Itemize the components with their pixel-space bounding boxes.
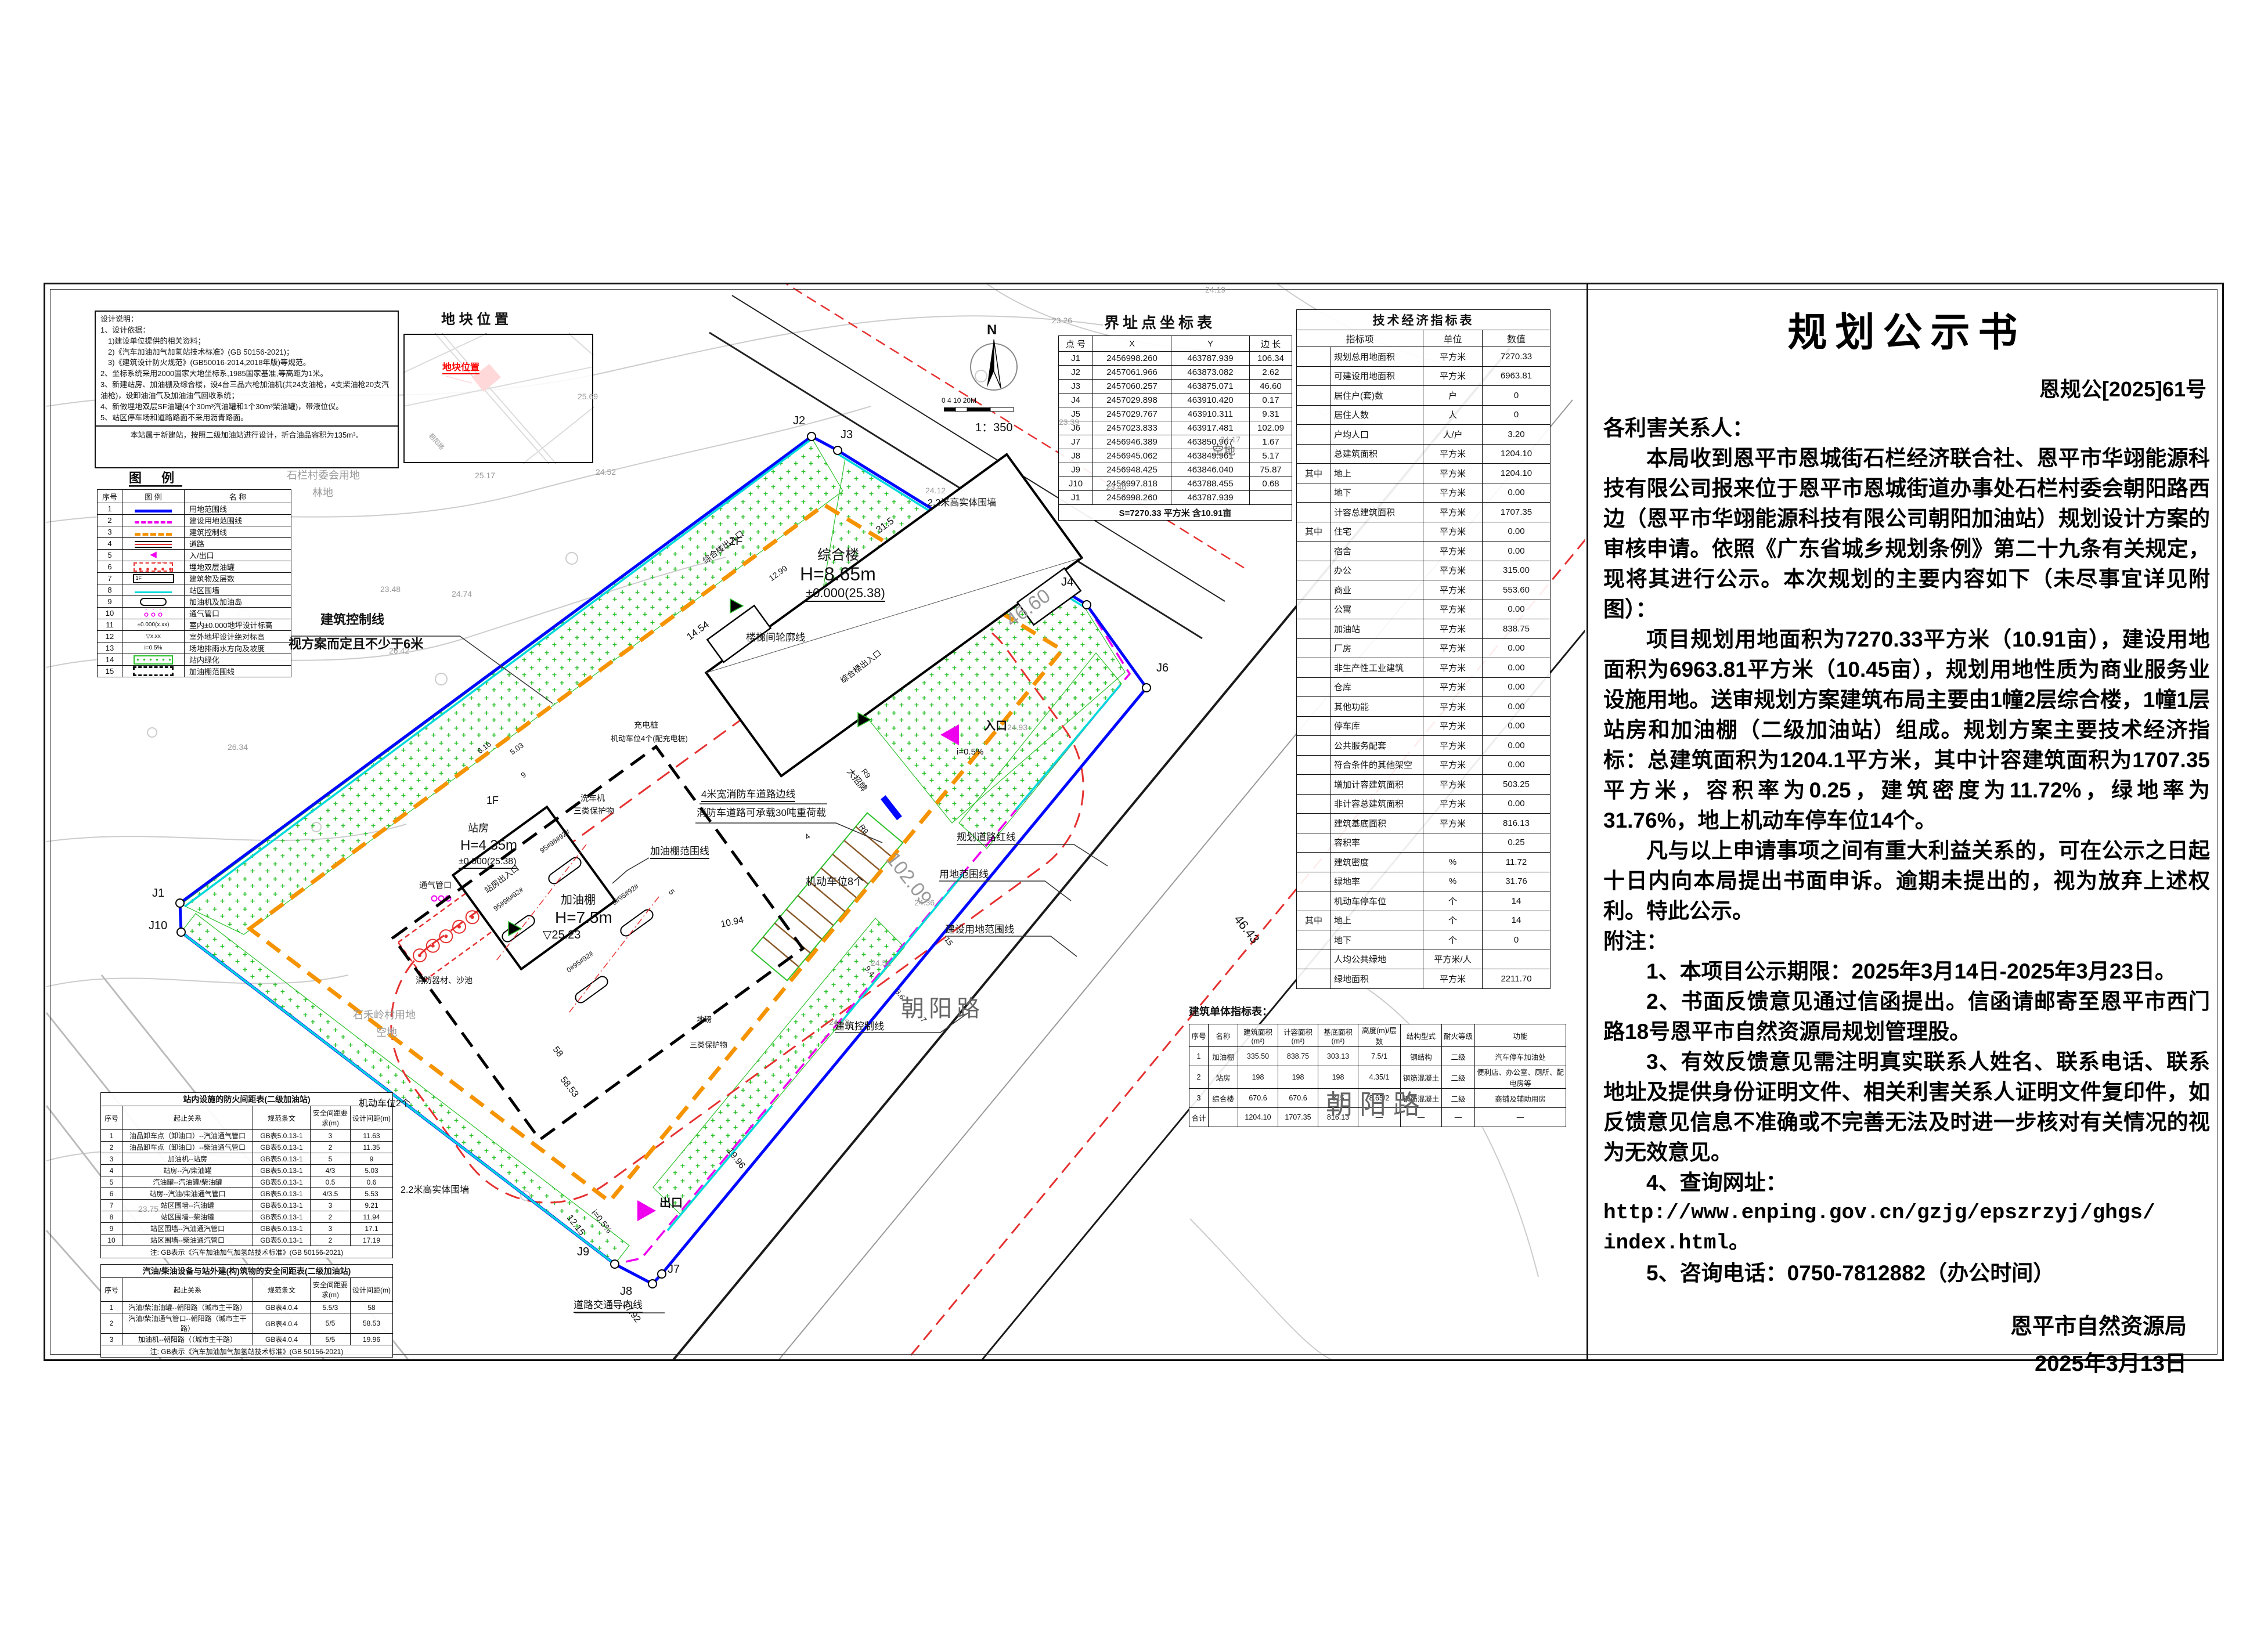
point-x: 2456998.260 [1093, 491, 1171, 505]
fs1-col-required: 安全间距要求(m) [311, 1106, 351, 1130]
point-label-j3: J3 [841, 428, 853, 441]
fs1-designed: 17.1 [351, 1223, 393, 1234]
legend-symbol-glyph [134, 562, 173, 572]
tech-indicator: 公寓 [1331, 600, 1423, 619]
legend-symbol: i=0.5% [122, 642, 185, 654]
tech-col-unit: 单位 [1423, 330, 1483, 347]
spot-elevation: 23.48 [380, 585, 401, 594]
tech-unit: 平方米 [1423, 619, 1483, 639]
tech-indicator: 加油站 [1331, 619, 1423, 639]
control-line-note-title: 建筑控制线 [320, 613, 384, 627]
notice-paragraph: http://www.enping.gov.cn/gzjg/epszrzyj/g… [1603, 1198, 2210, 1228]
b-area: 670.6 [1238, 1089, 1278, 1108]
design-note-line: 1、设计依据： [100, 325, 393, 336]
segment-length: 0.68 [1250, 477, 1292, 491]
tech-value: 0.00 [1483, 736, 1551, 756]
fs1-required: 0.5 [311, 1176, 351, 1188]
spot-elevation: 24.12 [925, 486, 946, 495]
legend-num: 4 [98, 538, 122, 550]
point-y: 463875.071 [1171, 380, 1250, 394]
location-map-marker-label: 地块位置 [442, 363, 479, 374]
tech-row: 建筑密度 % 11.72 [1297, 853, 1551, 872]
tech-group [1297, 853, 1331, 872]
point-x: 2457023.833 [1093, 421, 1171, 435]
fs1-code: GB表5.0.13-1 [253, 1211, 311, 1223]
b-far-area: 198 [1278, 1066, 1318, 1089]
tech-value: 3.20 [1483, 425, 1551, 445]
fs1-designed: 9 [351, 1153, 393, 1165]
b-col-footprint: 基底面积(m²) [1318, 1024, 1358, 1047]
legend-symbol-glyph [134, 655, 173, 665]
fs1-required: 3 [311, 1130, 351, 1142]
tech-indicator: 户均人口 [1331, 425, 1423, 445]
design-note-line: 4、新做埋地双层SF油罐(4个30m³汽油罐和1个30m³柴油罐)，带液位仪。 [100, 402, 393, 413]
fs1-required: 3 [311, 1200, 351, 1211]
b-num: 1 [1189, 1047, 1209, 1066]
tech-unit: 平方米 [1423, 542, 1483, 561]
tech-unit: 平方米 [1423, 716, 1483, 736]
tech-unit: 平方米 [1423, 464, 1483, 483]
tech-row: 其中 住宅 平方米 0.00 [1297, 522, 1551, 542]
exit-label: 出口 [659, 1197, 683, 1210]
fs2-num: 2 [101, 1313, 122, 1334]
point-label-j2: J2 [793, 414, 805, 427]
tech-unit: 平方米 [1423, 658, 1483, 678]
tech-row: 总建筑面积 平方米 1204.10 [1297, 444, 1551, 464]
tech-group [1297, 950, 1331, 969]
legend-table: 序号 图 例 名 称 1 用地范围线 2 建设用地范围线 [97, 489, 291, 677]
segment-length: 5.17 [1250, 449, 1292, 463]
tech-row: 建筑基底面积 平方米 816.13 [1297, 814, 1551, 833]
wall-label-2: 2.2米高实体围墙 [401, 1185, 469, 1196]
main-building-level: ±0.000(25.38) [806, 586, 885, 602]
tech-indicator: 其他功能 [1331, 697, 1423, 717]
fs1-relation: 站房--汽油/柴油通气管口 [122, 1188, 253, 1200]
tech-unit: 平方米 [1423, 736, 1483, 756]
b-col-structure: 结构型式 [1401, 1024, 1442, 1047]
legend-name: 通气管口 [185, 608, 291, 619]
fs2-row: 1 汽油/柴油油罐--朝阳路（城市主干路） GB表4.0.4 5.5/3 58 [101, 1302, 393, 1313]
fs2-col-code: 规范条文 [253, 1278, 311, 1302]
tech-value: 11.72 [1483, 853, 1551, 872]
fs1-required: 3 [311, 1223, 351, 1234]
legend-num: 6 [98, 561, 122, 573]
point-id: J1 [1059, 352, 1093, 366]
legend-row: 6 埋地双层油罐 [98, 561, 291, 573]
b-col-num: 序号 [1189, 1024, 1209, 1047]
design-note-line: 设计说明： [100, 314, 393, 325]
b-num: 2 [1189, 1066, 1209, 1089]
notice-panel: 规划公示书 恩规公[2025]61号 各利害关系人： 本局收到恩平市恩城街石栏经… [1588, 283, 2224, 1361]
shiheling-village-label: 石禾岭村用地 [353, 1010, 416, 1021]
charger-label: 充电桩 [634, 721, 658, 730]
legend-row: 4 道路 [98, 538, 291, 550]
design-note-line: 3、新建站房、加油棚及综合楼，设4台三品六枪加油机(共24支油枪，4支柴油枪20… [100, 380, 393, 402]
fs1-designed: 9.21 [351, 1200, 393, 1211]
b-area: 1204.10 [1238, 1108, 1278, 1127]
legend-symbol: 1F [122, 573, 185, 584]
fs1-required: 5 [311, 1153, 351, 1165]
b-num: 3 [1189, 1089, 1209, 1108]
design-note-footnote: 本站属于新建站，按照二级加油站进行设计，折合油品容积为135m³。 [96, 425, 398, 445]
legend-symbol [122, 561, 185, 573]
fs1-designed: 11.63 [351, 1130, 393, 1142]
legend-row: 14 站内绿化 [98, 654, 291, 666]
point-y: 463910.311 [1171, 407, 1250, 421]
tech-row: 其他功能 平方米 0.00 [1297, 697, 1551, 717]
point-x: 2456998.260 [1093, 352, 1171, 366]
tech-indicator: 规划总用地面积 [1331, 347, 1423, 367]
fs1-designed: 11.35 [351, 1142, 393, 1153]
legend-num: 1 [98, 503, 122, 515]
station-house-name: 站房 [468, 823, 489, 835]
tech-row: 居住户(套)数 户 0 [1297, 386, 1551, 406]
fs1-row: 2 油品卸车点（卸油口）--柴油通气管口 GB表5.0.13-1 2 11.35 [101, 1142, 393, 1153]
tech-indicator: 绿地率 [1331, 872, 1423, 891]
fs1-num: 2 [101, 1142, 122, 1153]
tech-indicator: 地上 [1331, 911, 1423, 930]
legend-symbol-glyph [135, 541, 172, 548]
fs1-relation: 油品卸车点（卸油口）--汽油通气管口 [122, 1130, 253, 1142]
tech-value: 1204.10 [1483, 444, 1551, 464]
spot-elevation: 26.34 [228, 743, 248, 752]
tech-indicator: 住宅 [1331, 522, 1423, 542]
fs2-code: GB表4.0.4 [253, 1313, 311, 1334]
point-id: J8 [1059, 449, 1093, 463]
tech-value: 14 [1483, 911, 1551, 930]
legend-row: 1 用地范围线 [98, 503, 291, 515]
tech-indicator: 办公 [1331, 561, 1423, 580]
legend-row: 12 ▽x.xx 室外地坪设计绝对标高 [98, 631, 291, 642]
b-height: 7.5/1 [1358, 1047, 1401, 1066]
b-col-fire: 耐火等级 [1442, 1024, 1475, 1047]
fs2-relation: 汽油/柴油油罐--朝阳路（城市主干路） [122, 1302, 253, 1313]
tech-row: 其中 地上 平方米 1204.10 [1297, 464, 1551, 483]
b-name: 综合楼 [1209, 1089, 1238, 1108]
legend-name: 室内±0.000地坪设计标高 [185, 619, 291, 631]
legend-row: 7 1F 建筑物及层数 [98, 573, 291, 584]
point-x: 2457061.966 [1093, 366, 1171, 380]
scale-bar-marks: 0 4 10 20M [942, 397, 976, 405]
tech-indicator: 绿地面积 [1331, 969, 1423, 989]
legend-row: 5 ◀ 入/出口 [98, 550, 291, 561]
boundary-row: J1 2456998.260 463787.939 [1059, 491, 1292, 505]
tech-group [1297, 638, 1331, 658]
legend-name: 室外地坪设计绝对标高 [185, 631, 291, 642]
b-far-area: 1707.35 [1278, 1108, 1318, 1127]
fs1-code: GB表5.0.13-1 [253, 1142, 311, 1153]
design-notes: 设计说明： 1、设计依据： 1)建设单位提供的相关资料； 2)《汽车加油加气加氢… [95, 311, 399, 468]
segment-length: 1.67 [1250, 435, 1292, 449]
tech-col-value: 数值 [1483, 330, 1551, 347]
fs1-col-num: 序号 [101, 1106, 122, 1130]
point-label-j1: J1 [152, 887, 164, 900]
tech-indicator: 厂房 [1331, 638, 1423, 658]
point-y: 463788.455 [1171, 477, 1250, 491]
b-far-area: 670.6 [1278, 1089, 1318, 1108]
tech-row: 规划总用地面积 平方米 7270.33 [1297, 347, 1551, 367]
fs1-num: 10 [101, 1234, 122, 1246]
point-y: 463787.939 [1171, 352, 1250, 366]
building-row: 1 加油棚 335.50 838.75 303.13 7.5/1 钢结构 二级 … [1189, 1047, 1566, 1066]
tech-unit: 平方米 [1423, 347, 1483, 367]
tech-indicator: 居住户(套)数 [1331, 386, 1423, 406]
tech-unit: 平方米 [1423, 794, 1483, 814]
fs1-required: 4/3 [311, 1165, 351, 1176]
notice-paragraph: 3、有效反馈意见需注明真实联系人姓名、联系电话、联系地址及提供身份证明文件、相关… [1603, 1047, 2210, 1168]
tech-indicator: 机动车停车位 [1331, 891, 1423, 911]
fs1-num: 1 [101, 1130, 122, 1142]
tech-unit: 平方米 [1423, 697, 1483, 717]
tech-indicator: 增加计容建筑面积 [1331, 775, 1423, 795]
design-note-line: 2)《汽车加油加气加氢站技术标准》(GB 50156-2021)； [100, 347, 393, 358]
legend-col-name: 名 称 [185, 490, 291, 503]
wall-label-1: 2.2米高实体围墙 [928, 498, 996, 508]
legend-col-symbol: 图 例 [122, 490, 185, 503]
notice-paragraph: 4、查询网址： [1603, 1168, 2210, 1198]
legend-num: 2 [98, 515, 122, 526]
notice-paragraph: 附注： [1603, 926, 2210, 956]
tech-indicator: 总建筑面积 [1331, 444, 1423, 464]
tech-group [1297, 736, 1331, 756]
notice-title: 规划公示书 [1603, 300, 2210, 358]
fs1-num: 9 [101, 1223, 122, 1234]
tech-unit: 平方米 [1423, 775, 1483, 795]
legend-num: 3 [98, 526, 122, 538]
tech-group [1297, 483, 1331, 503]
legend-symbol-glyph: ◀ [135, 551, 172, 560]
spot-elevation: 23.40 [1106, 483, 1126, 492]
col-length: 边 长 [1250, 336, 1292, 352]
b-function: 商铺及辅助用房 [1475, 1089, 1566, 1108]
tech-indicator: 公共服务配套 [1331, 736, 1423, 756]
tech-row: 厂房 平方米 0.00 [1297, 638, 1551, 658]
tech-value: 0.00 [1483, 677, 1551, 697]
fs1-row: 10 站区围墙--柴油通汽管口 GB表5.0.13-1 2 17.19 [101, 1234, 393, 1246]
tech-value: 0.00 [1483, 794, 1551, 814]
fs2-designed: 58 [351, 1302, 393, 1313]
vacant-land-label-1: 空地 [1212, 445, 1235, 457]
point-x: 2457060.257 [1093, 380, 1171, 394]
slope-label-1: i=0.5% [957, 748, 983, 757]
boundary-row: J5 2457029.767 463910.311 9.31 [1059, 407, 1292, 421]
tech-row: 可建设用地面积 平方米 6963.81 [1297, 366, 1551, 386]
tech-group [1297, 366, 1331, 386]
tech-indicator: 地上 [1331, 464, 1423, 483]
tech-indicator: 建筑基底面积 [1331, 814, 1423, 833]
legend-num: 12 [98, 631, 122, 642]
stairwell-label: 楼梯间轮廓线 [746, 633, 805, 644]
tech-group [1297, 425, 1331, 445]
tech-group [1297, 833, 1331, 853]
segment-length: 9.31 [1250, 407, 1292, 421]
fs1-relation: 站区围墙--柴油通汽管口 [122, 1234, 253, 1246]
station-house-floors: 1F [486, 795, 499, 807]
canopy-level: ▽25.23 [543, 929, 580, 941]
legend-row: 10 通气管口 [98, 608, 291, 619]
issuing-authority: 恩平市自然资源局 [1603, 1308, 2187, 1345]
location-map [403, 334, 593, 463]
legend-row: 13 i=0.5% 场地排雨水方向及坡度 [98, 642, 291, 654]
boundary-row: J7 2456946.389 463850.967 1.67 [1059, 435, 1292, 449]
legend-col-num: 序号 [98, 490, 122, 503]
fs2-row: 3 加油机--朝阳路（（城市主干路） GB表4.0.4 5/5 19.96 [101, 1334, 393, 1345]
b-col-far-area: 计容面积(m²) [1278, 1024, 1318, 1047]
legend-symbol-glyph [135, 521, 172, 524]
tech-group [1297, 386, 1331, 406]
fs2-col-num: 序号 [101, 1278, 122, 1302]
tech-unit: 平方米 [1423, 638, 1483, 658]
fs1-num: 5 [101, 1176, 122, 1188]
b-height: 4.35/1 [1358, 1066, 1401, 1089]
spot-elevation: 24.73 [829, 1018, 849, 1027]
tech-row: 非生产性工业建筑 平方米 0.00 [1297, 658, 1551, 678]
legend-name: 加油棚范围线 [185, 666, 291, 677]
tech-group [1297, 405, 1331, 425]
boundary-row: J1 2456998.260 463787.939 106.34 [1059, 352, 1292, 366]
tech-group [1297, 775, 1331, 795]
b-structure: 钢结构 [1401, 1047, 1442, 1066]
notice-number: 恩规公[2025]61号 [1603, 373, 2206, 403]
b-col-name: 名称 [1209, 1024, 1238, 1047]
tech-value: 0 [1483, 405, 1551, 425]
tech-value: 0.00 [1483, 522, 1551, 542]
tech-unit: 平方米 [1423, 561, 1483, 580]
segment-length: 2.62 [1250, 366, 1292, 380]
weighbridge-label: 地磅 [697, 1016, 712, 1024]
notice-paragraph: 2、书面反馈意见通过信函提出。信函请邮寄至恩平市西门路18号恩平市自然资源局规划… [1603, 987, 2210, 1047]
tech-unit: 平方米 [1423, 580, 1483, 600]
charger-parking-label: 机动车位4个(配充电桩) [611, 735, 688, 743]
spot-elevation: 23.26 [1052, 316, 1072, 325]
tech-row: 其中 地上 个 14 [1297, 911, 1551, 930]
tech-group [1297, 444, 1331, 464]
tech-row: 办公 平方米 315.00 [1297, 561, 1551, 580]
legend-name: 场地排雨水方向及坡度 [185, 642, 291, 654]
tech-unit: 个 [1423, 911, 1483, 930]
fs2-row: 2 汽油/柴油通气管口--朝阳路（城市主干路） GB表4.0.4 5/5 58.… [101, 1313, 393, 1334]
tech-group [1297, 716, 1331, 736]
legend-row: 2 建设用地范围线 [98, 515, 291, 526]
notice-paragraph: 1、本项目公示期限：2025年3月14日-2025年3月23日。 [1603, 956, 2210, 987]
tech-value: 0.25 [1483, 833, 1551, 853]
tech-group [1297, 891, 1331, 911]
tech-row: 地下 平方米 0.00 [1297, 483, 1551, 503]
tech-row: 仓库 平方米 0.00 [1297, 677, 1551, 697]
legend-symbol-glyph: i=0.5% [135, 644, 172, 652]
fs1-designed: 17.19 [351, 1234, 393, 1246]
tech-row: 增加计容建筑面积 平方米 503.25 [1297, 775, 1551, 795]
legend-name: 埋地双层油罐 [185, 561, 291, 573]
fs1-num: 7 [101, 1200, 122, 1211]
point-label-j4: J4 [1061, 576, 1073, 589]
tech-unit: 平方米 [1423, 444, 1483, 464]
boundary-table: 点 号 X Y 边 长 J1 2456998.260 463787.939 10… [1058, 335, 1292, 521]
tech-indicator: 宿舍 [1331, 542, 1423, 561]
legend-num: 11 [98, 619, 122, 631]
legend-name: 加油机及加油岛 [185, 596, 291, 608]
b-col-area: 建筑面积(m²) [1238, 1024, 1278, 1047]
point-id: J7 [1059, 435, 1093, 449]
tech-indicator: 停车库 [1331, 716, 1423, 736]
legend-row: 15 加油棚范围线 [98, 666, 291, 677]
fire-spacing-table: 站内设施的防火间距表(二级加油站) 序号 起止关系 规范条文 安全间距要求(m)… [100, 1092, 393, 1258]
fs2-col-required: 安全间距要求(m) [311, 1278, 351, 1302]
legend-symbol-glyph [142, 609, 165, 618]
tech-group [1297, 872, 1331, 891]
spot-elevation: 26.42 [389, 647, 409, 655]
boundary-area-total: S=7270.33 平方米 含10.91亩 [1059, 505, 1292, 521]
legend-num: 13 [98, 642, 122, 654]
tech-row: 容积率 0.25 [1297, 833, 1551, 853]
point-label-j9: J9 [577, 1246, 589, 1258]
tech-table: 技术经济指标表 指标项 单位 数值 规划总用地面积 平方米 7270.33 [1296, 309, 1551, 989]
tech-indicator: 非生产性工业建筑 [1331, 658, 1423, 678]
fs1-code: GB表5.0.13-1 [253, 1130, 311, 1142]
spot-elevation: 25.69 [578, 392, 598, 401]
fs2-relation: 汽油/柴油通气管口--朝阳路（城市主干路） [122, 1313, 253, 1334]
point-x: 2456946.389 [1093, 435, 1171, 449]
point-id: J2 [1059, 366, 1093, 380]
legend-name: 用地范围线 [185, 503, 291, 515]
fs2-title: 汽油/柴油设备与站外建(构)筑物的安全间距表(二级加油站) [101, 1265, 393, 1278]
segment-length: 102.09 [1250, 421, 1292, 435]
legend-title: 图 例 [129, 471, 182, 487]
b-name [1209, 1108, 1238, 1127]
point-label-j8: J8 [620, 1285, 632, 1298]
shilan-village-label: 石栏村委会用地 [287, 470, 360, 482]
tech-row: 商业 平方米 553.60 [1297, 580, 1551, 600]
parking8-label: 机动车位8个 [806, 876, 864, 888]
legend-num: 8 [98, 584, 122, 596]
canopy-extent-label: 加油棚范围线 [650, 846, 709, 859]
fs1-relation: 加油机--站房 [122, 1153, 253, 1165]
segment-length: 106.34 [1250, 352, 1292, 366]
fs1-designed: 5.53 [351, 1188, 393, 1200]
boundary-row: J10 2456997.818 463788.455 0.68 [1059, 477, 1292, 491]
north-label: N [987, 323, 997, 338]
tech-row: 公共服务配套 平方米 0.00 [1297, 736, 1551, 756]
fs2-col-designed: 设计间距(m) [351, 1278, 393, 1302]
segment-length: 0.17 [1250, 394, 1292, 407]
fs1-code: GB表5.0.13-1 [253, 1176, 311, 1188]
tech-group [1297, 542, 1331, 561]
notice-paragraph: index.html。 [1603, 1228, 2210, 1258]
fs1-col-designed: 设计间距(m) [351, 1106, 393, 1130]
tech-indicator: 非计容总建筑面积 [1331, 794, 1423, 814]
road-name-label-1: 朝阳路 [1326, 1090, 1427, 1120]
notice-paragraph: 凡与以上申请事项之间有重大利益关系的，可在公示之日起十日内向本局提出书面申诉。逾… [1603, 836, 2210, 926]
spot-elevation: 24.93 [1007, 723, 1027, 732]
tech-value: 0.00 [1483, 658, 1551, 678]
tech-unit: 人/户 [1423, 425, 1483, 445]
fs1-code: GB表5.0.13-1 [253, 1234, 311, 1246]
legend-symbol [122, 666, 185, 677]
spot-elevation: 23.75 [138, 1205, 158, 1214]
point-y: 463873.082 [1171, 366, 1250, 380]
tech-row: 计容总建筑面积 平方米 1707.35 [1297, 503, 1551, 522]
tech-group [1297, 930, 1331, 950]
b-footprint: 198 [1318, 1066, 1358, 1089]
fs1-designed: 11.94 [351, 1211, 393, 1223]
fs2-required: 5/5 [311, 1313, 351, 1334]
legend-symbol: ±0.000(x.xx) [122, 619, 185, 631]
tech-unit [1423, 833, 1483, 853]
main-building-name: 综合楼 [817, 548, 859, 563]
spot-elevation: 24.74 [452, 590, 472, 598]
notice-body: 各利害关系人： 本局收到恩平市恩城街石栏经济联合社、恩平市华翊能源科技有限公司报… [1603, 413, 2210, 1288]
tech-value: 0 [1483, 930, 1551, 950]
